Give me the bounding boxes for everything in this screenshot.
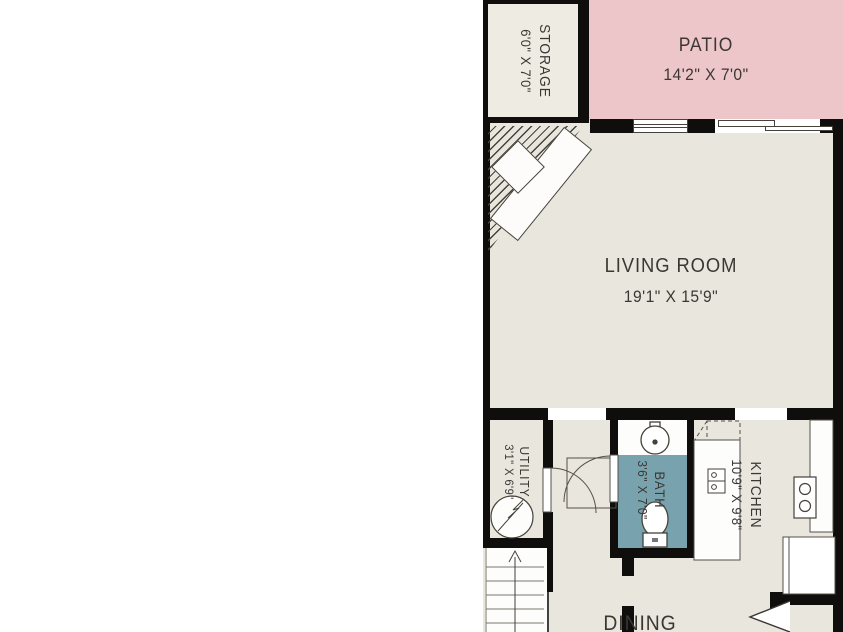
refrigerator-icon bbox=[783, 537, 835, 594]
kitchen-dims: 10'9" X 9'8" bbox=[728, 421, 746, 568]
utility-label: UTILITY 3'1" X 6'9" bbox=[500, 417, 532, 527]
wall-segment bbox=[687, 420, 694, 556]
patio-name: PATIO bbox=[623, 34, 789, 58]
utility-dims: 3'1" X 6'9" bbox=[501, 417, 516, 527]
patio-label: PATIO 14'2" X 7'0" bbox=[623, 34, 789, 85]
dining-name: DINING bbox=[580, 611, 700, 632]
wall-segment bbox=[770, 592, 843, 605]
living-room-dims: 19'1" X 15'9" bbox=[574, 286, 767, 307]
floor-plan: STORAGE 6'0" X 7'0" PATIO 14'2" X 7'0" L… bbox=[483, 0, 843, 632]
staircase-icon bbox=[485, 548, 547, 632]
storage-dims: 6'0" X 7'0" bbox=[517, 6, 535, 116]
wall-segment bbox=[833, 119, 843, 632]
wall-segment bbox=[483, 0, 589, 4]
kitchen-name: KITCHEN bbox=[745, 421, 764, 568]
wall-segment bbox=[610, 502, 618, 548]
stove-icon bbox=[794, 477, 816, 518]
storage-label: STORAGE 6'0" X 7'0" bbox=[513, 6, 553, 116]
window-glazing bbox=[634, 124, 687, 128]
wall-segment bbox=[610, 420, 618, 455]
bath-dims: 3'6" X 7'0" bbox=[634, 435, 650, 545]
living-room-label: LIVING ROOM 19'1" X 15'9" bbox=[574, 254, 767, 307]
wall-segment bbox=[483, 117, 589, 123]
dining-label: DINING bbox=[580, 611, 700, 632]
wall-segment bbox=[543, 420, 553, 468]
storage-name: STORAGE bbox=[534, 6, 553, 116]
wall-segment bbox=[770, 605, 782, 613]
utility-name: UTILITY bbox=[516, 417, 532, 527]
doorway-opening bbox=[735, 408, 787, 420]
sliding-door-panel bbox=[765, 126, 833, 131]
wall-segment bbox=[543, 512, 553, 592]
bath-label: BATH 3'6" X 7'0" bbox=[636, 435, 668, 545]
patio-dims: 14'2" X 7'0" bbox=[623, 64, 789, 85]
wall-segment bbox=[483, 0, 488, 122]
window bbox=[633, 119, 688, 133]
wall-segment bbox=[606, 408, 735, 420]
kitchen-sink-icon bbox=[708, 469, 725, 493]
living-room-name: LIVING ROOM bbox=[574, 254, 767, 279]
stair-rail-line bbox=[547, 592, 549, 632]
kitchen-label: KITCHEN 10'9" X 9'8" bbox=[728, 421, 764, 568]
wall-segment bbox=[787, 408, 843, 420]
floor-plan-page: { "rooms": { "storage": { "name": "STORA… bbox=[0, 0, 843, 632]
wall-segment bbox=[610, 548, 694, 558]
wall-segment bbox=[622, 558, 634, 576]
hall-door-swings bbox=[543, 455, 618, 513]
doorway-opening bbox=[548, 408, 606, 420]
staircase-upper bbox=[488, 126, 610, 252]
wall-segment bbox=[483, 538, 553, 548]
wall-segment bbox=[578, 0, 589, 123]
bath-name: BATH bbox=[651, 435, 669, 545]
wall-segment bbox=[688, 119, 715, 133]
